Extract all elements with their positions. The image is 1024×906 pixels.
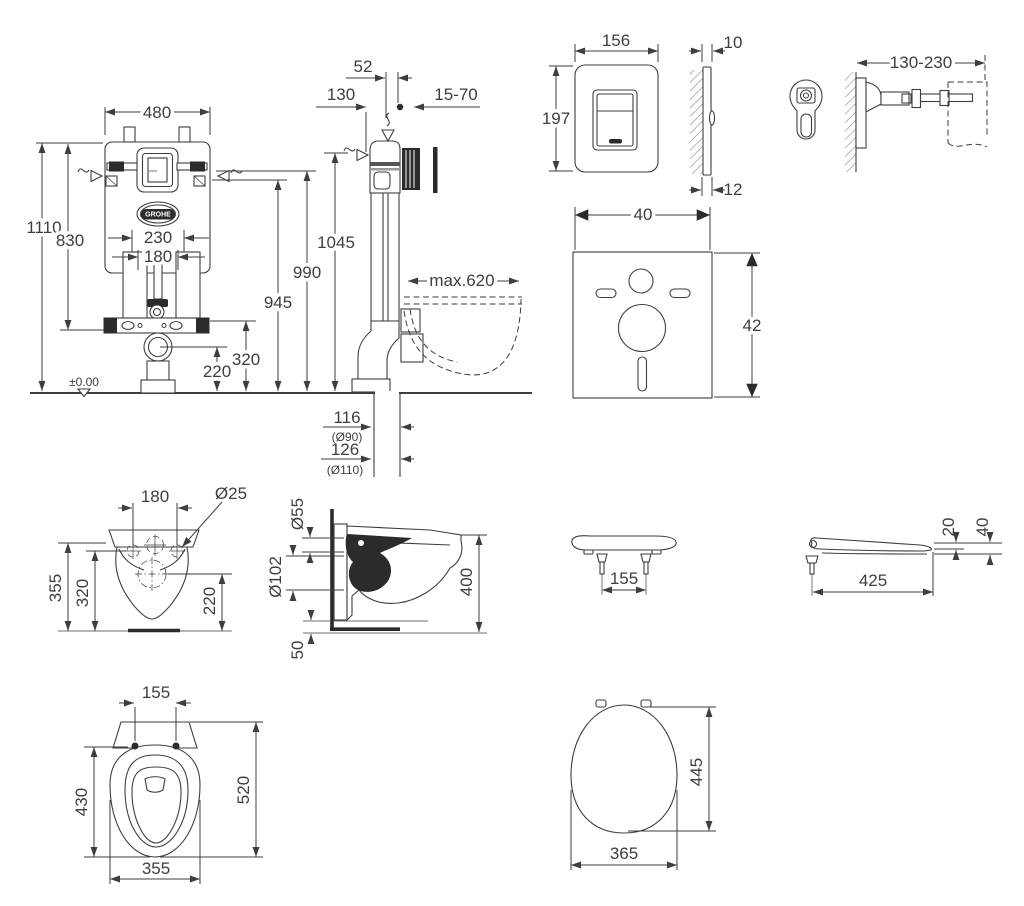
- sound-pad-view: 40 42: [573, 205, 761, 398]
- dim-height-1045: 1045: [317, 233, 355, 252]
- ceramic-outline-dashed: [948, 82, 987, 147]
- dim-frame-height-upper: 830: [56, 231, 84, 250]
- dim-top-depth: 520: [234, 776, 253, 804]
- flush-plate-outline: [575, 65, 658, 172]
- dim-bottom-gap: 50: [288, 641, 307, 660]
- dim-frame-width: 480: [143, 103, 171, 122]
- dim-top-bolt-span: 155: [142, 683, 170, 702]
- dim-drain-height: 320: [232, 350, 260, 369]
- dim-outlet2: 126: [331, 440, 359, 459]
- dim-bowl-height: 400: [457, 568, 476, 596]
- dim-bowl-320: 320: [73, 579, 92, 607]
- seat-hinge-bolt-left: [597, 554, 607, 595]
- flush-plate-side-view: 10 12: [689, 33, 742, 199]
- flush-plate-front-view: 156 197: [542, 31, 658, 172]
- seat-hinge-bolt-right: [641, 554, 651, 595]
- dim-plate-thickness-bottom: 12: [724, 180, 743, 199]
- wall-hatch-2: [845, 72, 856, 172]
- frame-crossbar: [104, 318, 209, 333]
- dim-outlet1: 116: [333, 408, 360, 427]
- bracket-keyhole-outline: [790, 80, 822, 139]
- brand-label: GROHE: [145, 212, 171, 219]
- dim-outlet-dia: Ø102: [266, 556, 285, 598]
- dim-inlet-dia: Ø55: [288, 498, 307, 530]
- dim-990: 990: [293, 263, 321, 282]
- dim-pad-width: 40: [634, 205, 653, 224]
- frame-side-view: [344, 104, 522, 478]
- dim-bracket-range: 130-230: [890, 53, 952, 72]
- dim-bolt-span: 180: [144, 247, 172, 266]
- dim-rail-span: 230: [144, 228, 172, 247]
- flush-outlet-top: [145, 777, 165, 793]
- wall-anchor-block: [402, 148, 420, 190]
- seat-side-profile: [811, 538, 932, 551]
- bowl-top-view: 155 430 520 355: [72, 683, 263, 884]
- dim-depth-130: 130: [327, 85, 355, 104]
- dim-bowl-355: 355: [46, 574, 65, 602]
- dim-outlet-height: 220: [203, 362, 231, 381]
- dim-seat-thickness-20: 20: [939, 518, 958, 537]
- wall-bracket-side-view: 130-230: [845, 53, 987, 172]
- dim-plate-height: 197: [542, 109, 570, 128]
- datum-label: ±0.00: [69, 375, 99, 389]
- wall-hatch: [690, 70, 703, 174]
- wall-finish-line: [433, 147, 438, 193]
- dim-bowl-220: 220: [200, 587, 219, 615]
- frame-rail-profile: [371, 193, 399, 321]
- dim-outlet2-dia: (Ø110): [327, 463, 363, 477]
- bracket-wedge: [866, 82, 881, 112]
- spray-arrow-side-icon: [344, 148, 368, 161]
- seat-front-view: 155: [572, 536, 676, 595]
- grohe-logo: GROHE: [137, 202, 179, 226]
- bowl-side-view: Ø55 Ø102 400 50: [266, 498, 487, 660]
- bowl-front-view: 180 Ø25 355 320 220: [46, 484, 247, 631]
- dim-945: 945: [264, 293, 292, 312]
- bowl-top-outline: [110, 745, 200, 857]
- dim-max-depth: max.620: [429, 271, 494, 290]
- dim-seat-length: 425: [859, 571, 887, 590]
- sound-pad-outline: [573, 252, 712, 398]
- dim-seat-top-width: 365: [610, 844, 638, 863]
- dim-plate-thickness-top: 10: [724, 33, 743, 52]
- spray-arrow-left-icon: [78, 169, 102, 182]
- frame-side-dimensions: 52 130 15-70 1045 max.620 116 (Ø90) 126 …: [316, 57, 519, 477]
- drain-elbow: [358, 321, 399, 379]
- technical-drawing-sheet: GROHE 480 1110 830 230 180: [0, 0, 1024, 906]
- dim-top-inner-depth: 430: [72, 788, 91, 816]
- dim-top-width: 355: [142, 859, 170, 878]
- seat-top-view: 445 365: [571, 700, 716, 870]
- bowl-top-plate: [109, 530, 199, 547]
- seat-front-profile: [572, 536, 676, 550]
- seat-side-view: 425 20 40: [806, 518, 1002, 596]
- dim-offset-52: 52: [354, 57, 373, 76]
- seat-side-hinge-bolt: [806, 556, 818, 596]
- dim-pad-height: 42: [743, 316, 762, 335]
- dim-bowl-bolt-span: 180: [141, 487, 169, 506]
- dim-bowl-bolt-dia: Ø25: [215, 484, 247, 503]
- dim-seat-top-depth: 445: [687, 758, 706, 786]
- drawing-canvas: GROHE 480 1110 830 230 180: [0, 0, 1024, 906]
- dim-wall-range: 15-70: [434, 85, 477, 104]
- wall-bracket-top-view: [790, 80, 822, 139]
- bowl-top-plate-2: [113, 722, 197, 748]
- water-supply-arrow-icon: [382, 113, 394, 141]
- dim-seat-thickness-40: 40: [973, 518, 992, 537]
- dim-seat-bolt-span: 155: [610, 569, 638, 588]
- dim-plate-width: 156: [602, 31, 630, 50]
- seat-top-outline: [571, 705, 677, 833]
